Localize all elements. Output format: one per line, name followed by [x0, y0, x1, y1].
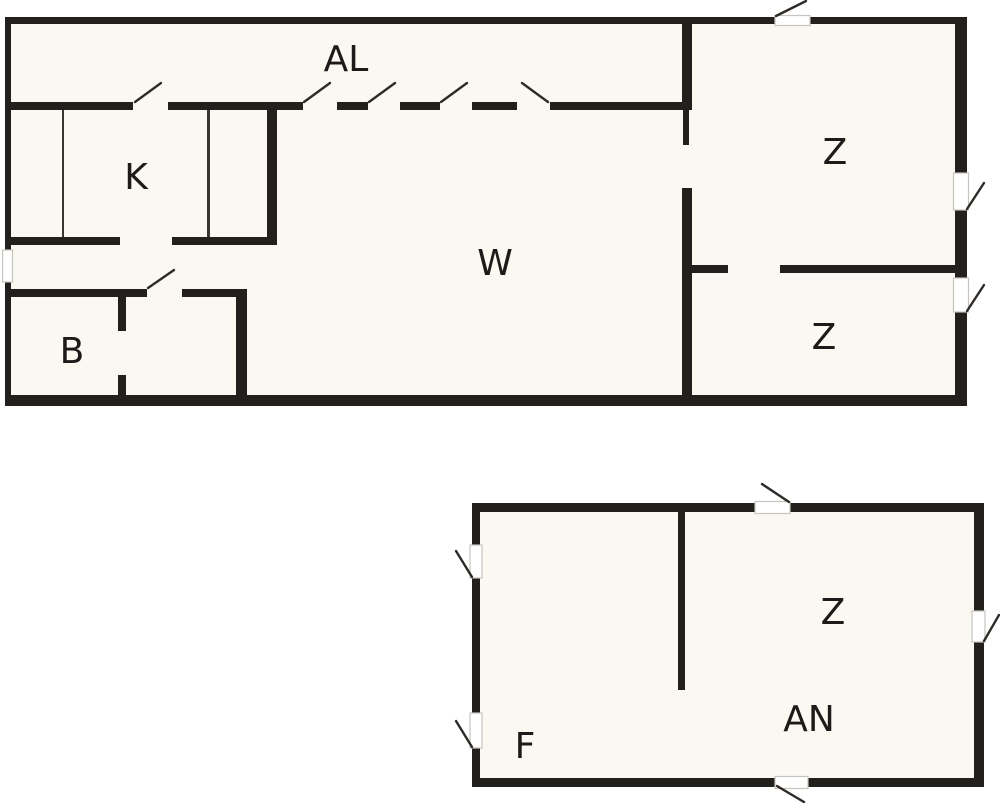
kitchen-right-wall [267, 110, 277, 245]
door-swing [984, 615, 999, 641]
corridor-wall-segment [400, 102, 440, 110]
z-z-wall-segment [780, 265, 955, 273]
door-swing [967, 183, 984, 209]
main-right-wall [955, 17, 967, 406]
b-room-partition-segment [118, 297, 126, 331]
room-label-z-annex: Z [821, 592, 846, 633]
w-z-wall-upper [682, 17, 692, 110]
b-room-partition-segment [118, 375, 126, 395]
annex-floor [472, 503, 983, 787]
corridor-wall-segment [337, 102, 368, 110]
annex-divider-wall [678, 512, 685, 690]
annex-top-door-opening [755, 502, 790, 514]
main-top-wall [5, 17, 967, 24]
room-label-f: F [515, 726, 536, 767]
room-label-z-lower: Z [812, 317, 837, 358]
w-z-wall-stub [683, 110, 689, 145]
room-label-k: K [124, 157, 149, 198]
main-left-window [3, 250, 13, 282]
main-top-door-opening [775, 16, 810, 26]
annex-bottom-wall [472, 778, 983, 787]
corridor-wall-segment [5, 102, 133, 110]
main-right-door-opening-lower [954, 278, 969, 312]
main-house: AL K W Z Z B [3, 1, 985, 406]
kitchen-thin-partition [207, 110, 210, 237]
floor-plan: AL K W Z Z B [0, 0, 1000, 803]
corridor-wall-segment [472, 102, 517, 110]
kitchen-bottom-wall-segment [172, 237, 277, 245]
b-area-right-wall [236, 289, 247, 395]
door-swing [762, 484, 789, 502]
annex-right-wall [974, 503, 984, 787]
room-label-z-upper: Z [823, 132, 848, 173]
room-label-an: AN [783, 699, 835, 740]
room-label-al: AL [324, 39, 369, 80]
annex-left-window-lower [470, 713, 482, 748]
corridor-wall-segment [550, 102, 683, 110]
main-right-door-opening-upper [954, 173, 969, 210]
kitchen-bottom-wall-segment [5, 237, 120, 245]
corridor-wall-segment [168, 102, 303, 110]
room-label-b: B [60, 331, 85, 372]
main-bottom-wall [5, 395, 967, 406]
room-label-w: W [477, 243, 513, 284]
z-z-wall-segment [687, 265, 728, 273]
kitchen-thin-partition [62, 110, 64, 237]
annex-right-door-opening [972, 611, 985, 642]
annex: Z AN F [456, 484, 999, 802]
floor-plan-svg: AL K W Z Z B [0, 0, 1000, 803]
main-left-wall [5, 17, 11, 406]
door-swing [776, 1, 806, 16]
annex-left-window-upper [470, 545, 482, 578]
w-z-wall-lower [682, 188, 692, 395]
b-area-top-wall-segment [5, 289, 147, 297]
annex-top-wall [472, 503, 983, 512]
door-swing [967, 285, 984, 311]
